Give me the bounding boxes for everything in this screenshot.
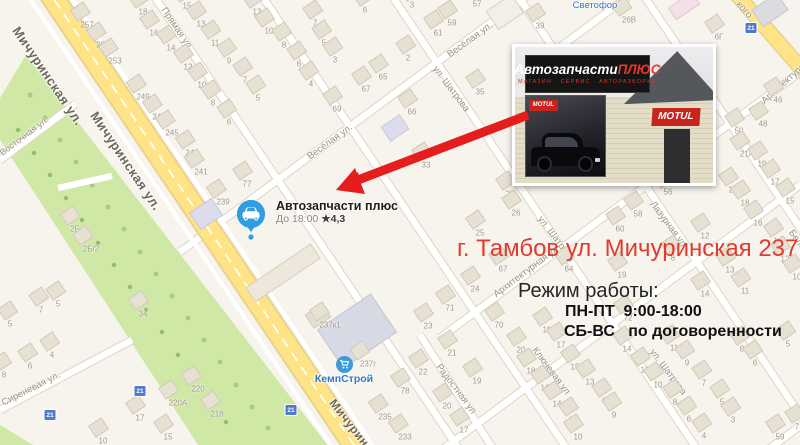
marker-hours: До 18:00 <box>276 213 318 225</box>
photo-banner: MOTUL <box>525 95 606 177</box>
schedule-weekend: СБ-ВС по договоренности <box>564 323 782 341</box>
motul-banner-logo: MOTUL <box>529 100 558 111</box>
store-sign: АвтозапчастиПЛЮС МАГАЗИН · СЕРВИС · АВТО… <box>525 55 650 92</box>
storefront-photo: АвтозапчастиПЛЮС МАГАЗИН · СЕРВИС · АВТО… <box>512 44 716 186</box>
map-screenshot: Мичуринская ул.Мичуринская ул.Мичуринска… <box>0 0 800 445</box>
address-annotation: г. Тамбов ул. Мичуринская 237г. <box>457 235 800 263</box>
store-sign-subtitle: МАГАЗИН · СЕРВИС · АВТОРАЗБОРКА <box>518 79 657 85</box>
place-marker-pin[interactable] <box>233 196 269 247</box>
store-sign-title: АвтозапчастиПЛЮС <box>514 63 660 77</box>
schedule-heading: Режим работы: <box>518 280 659 303</box>
rating-star-icon: ★ <box>321 213 330 225</box>
poi-label-kempstroy[interactable]: КемпСтрой <box>315 373 373 385</box>
poi-label-svetofor[interactable]: Светофор <box>573 0 618 11</box>
marker-title[interactable]: Автозапчасти плюс <box>276 199 398 213</box>
schedule-weekdays: ПН-ПТ 9:00-18:00 <box>565 303 702 321</box>
marker-subtitle: До 18:00 ★4,3 <box>276 213 345 225</box>
photo-door <box>664 129 690 183</box>
shopping-cart-icon[interactable] <box>336 356 353 373</box>
car-photo <box>531 135 599 172</box>
motul-wall-sign: MOTUL <box>651 108 700 126</box>
marker-rating: 4,3 <box>331 213 346 225</box>
